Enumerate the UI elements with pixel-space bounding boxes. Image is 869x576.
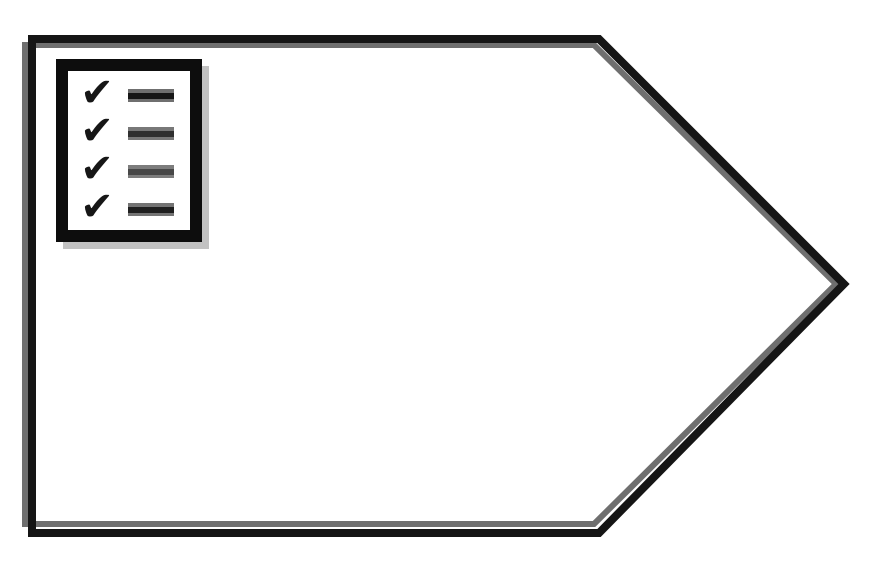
checklist-row: ✔	[68, 190, 190, 228]
list-line-dash	[128, 127, 174, 140]
diagram-canvas: ✔ ✔ ✔ ✔	[0, 0, 869, 576]
list-line-dash	[128, 203, 174, 216]
check-icon: ✔	[76, 73, 118, 113]
checklist-icon: ✔ ✔ ✔ ✔	[56, 59, 202, 242]
list-line-dash	[128, 165, 174, 178]
check-icon: ✔	[76, 111, 118, 151]
check-icon: ✔	[76, 187, 118, 227]
list-line-dash	[128, 89, 174, 102]
check-icon: ✔	[76, 149, 118, 189]
